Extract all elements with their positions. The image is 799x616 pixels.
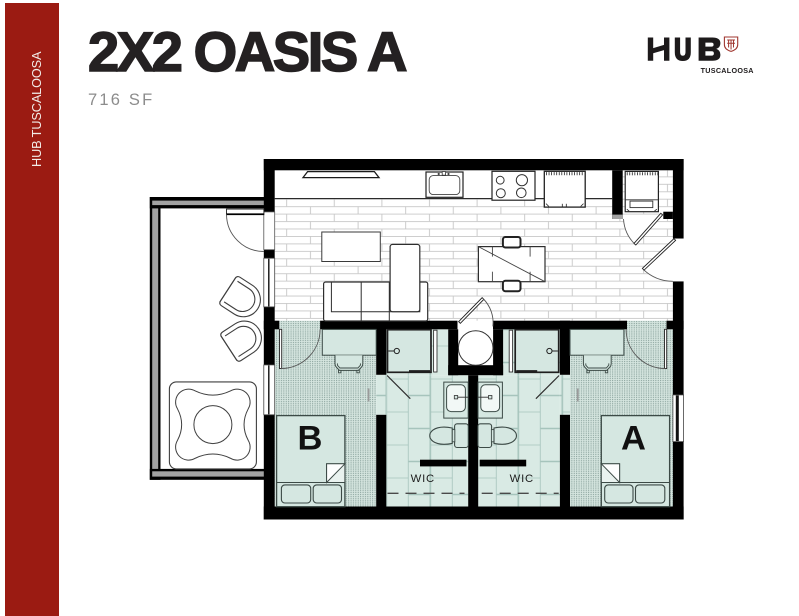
svg-text:WIC: WIC	[411, 473, 435, 485]
svg-text:B: B	[298, 420, 323, 458]
svg-text:A: A	[621, 420, 646, 458]
svg-text:WIC: WIC	[510, 473, 534, 485]
